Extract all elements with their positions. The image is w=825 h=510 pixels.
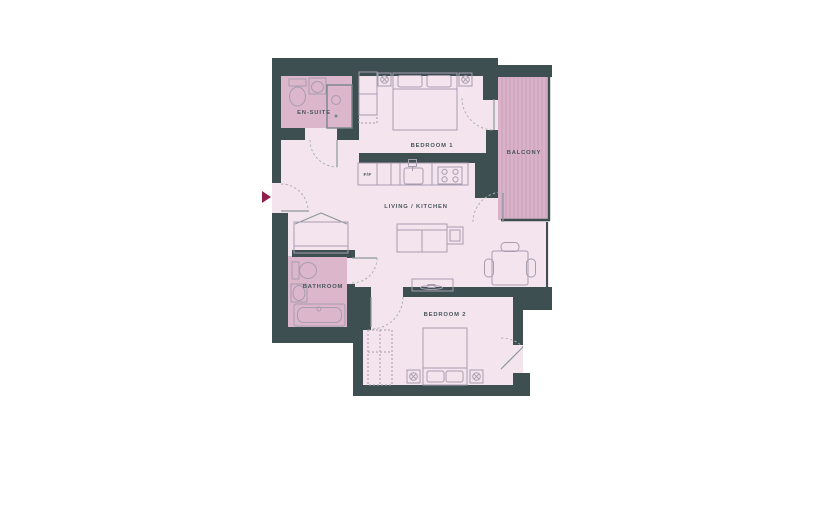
floorplan-svg: EN-SUITE BEDROOM 1 BALCONY LIVING / KITC…	[0, 0, 825, 510]
ensuite-label: EN-SUITE	[297, 110, 331, 116]
living-kitchen-label: LIVING / KITCHEN	[384, 204, 448, 210]
wall-left-upper	[272, 58, 281, 183]
bathroom-label: BATHROOM	[303, 284, 344, 290]
wall-bedroom1-right-mid	[486, 130, 498, 155]
ensuite-floor	[281, 76, 352, 128]
balcony-label: BALCONY	[507, 150, 542, 156]
wall-bedroom1-right-corner	[483, 58, 498, 100]
wall-right-bedroom2-corner	[513, 373, 530, 396]
wall-left-lower	[272, 213, 288, 343]
fridge-freezer-label: F/F	[363, 172, 371, 178]
bathroom-floor	[288, 256, 347, 327]
entry-arrow-icon	[262, 191, 271, 203]
bedroom2-label: BEDROOM 2	[424, 312, 467, 318]
wall-bathroom-right-bottom	[347, 284, 355, 330]
wall-bottom	[353, 385, 530, 396]
wall-living-bedroom2-divider	[403, 287, 513, 297]
wall-bedroom2-door-chunk	[353, 287, 371, 330]
floorplan-page: EN-SUITE BEDROOM 1 BALCONY LIVING / KITC…	[0, 0, 825, 510]
wall-ensuite-right	[352, 58, 359, 128]
bedroom1-label: BEDROOM 1	[411, 143, 454, 149]
wall-bottom-left-block	[272, 327, 355, 343]
wall-bedroom1-bottom	[359, 153, 480, 163]
wall-top-balcony	[490, 65, 552, 77]
wall-dining-block	[513, 287, 552, 310]
wall-living-balcony-block	[475, 153, 498, 198]
wall-ensuite-bottom-right	[337, 128, 359, 140]
wall-ensuite-bottom-left	[281, 128, 305, 140]
